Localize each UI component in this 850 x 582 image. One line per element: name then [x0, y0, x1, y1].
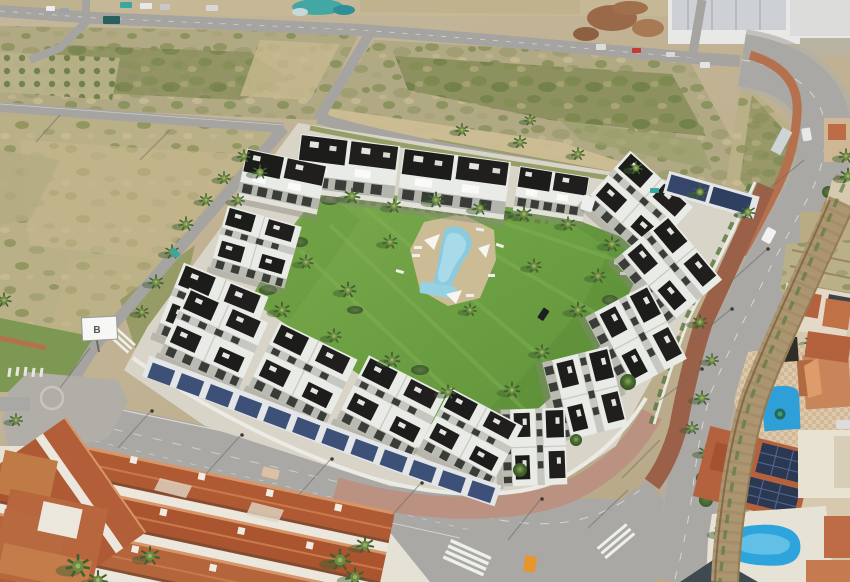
svg-text:B: B — [93, 325, 100, 336]
